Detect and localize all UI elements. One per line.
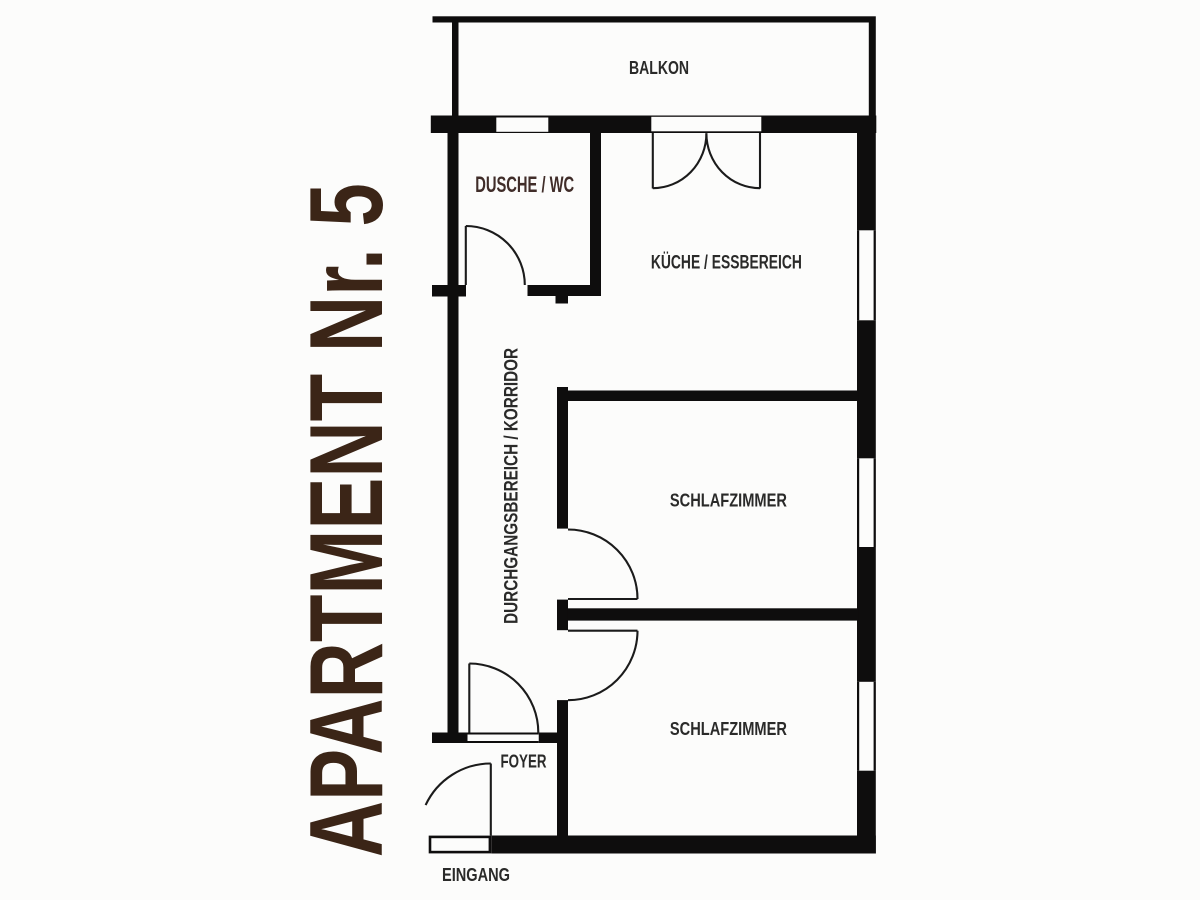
svg-text:KÜCHE / ESSBEREICH: KÜCHE / ESSBEREICH bbox=[651, 253, 802, 274]
svg-text:DUSCHE / WC: DUSCHE / WC bbox=[475, 172, 574, 197]
svg-text:APARTMENT Nr. 5: APARTMENT Nr. 5 bbox=[289, 183, 405, 857]
svg-text:SCHLAFZIMMER: SCHLAFZIMMER bbox=[670, 491, 787, 511]
svg-text:EINGANG: EINGANG bbox=[442, 865, 510, 885]
svg-text:BALKON: BALKON bbox=[629, 58, 689, 78]
svg-text:FOYER: FOYER bbox=[501, 752, 547, 772]
svg-text:SCHLAFZIMMER: SCHLAFZIMMER bbox=[670, 719, 787, 739]
svg-text:DURCHGANGSBEREICH / KORRIDOR: DURCHGANGSBEREICH / KORRIDOR bbox=[501, 348, 523, 624]
